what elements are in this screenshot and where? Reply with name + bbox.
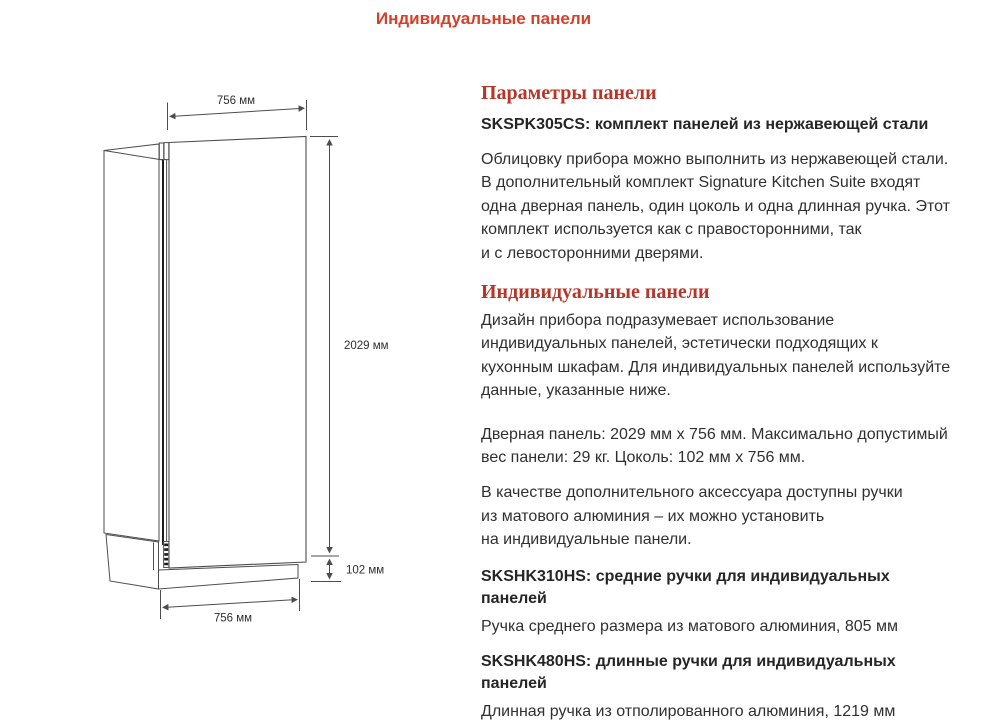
product-code-skspk305cs: SKSPK305CS: комплект панелей из нержавею… [481, 114, 959, 136]
paragraph-panel-params: Облицовку прибора можно выполнить из нер… [481, 148, 959, 265]
hinge-rail-drawing [164, 542, 169, 568]
dimension-plinth-height-label: 102 мм [346, 565, 384, 577]
dimension-height-label: 2029 мм [344, 340, 389, 352]
dimension-top-width: 756 мм [168, 95, 307, 130]
section-heading-panel-params: Параметры панели [481, 82, 959, 104]
content-column: Параметры панели SKSPK305CS: комплект па… [481, 82, 959, 724]
dimension-plinth-height: 102 мм [311, 560, 384, 582]
paragraph-handles-info: В качестве дополнительного аксессуара до… [481, 481, 959, 551]
dimension-bottom-width-label: 756 мм [214, 613, 252, 625]
product-code-skshk480hs: SKSHK480HS: длинные ручки для индивидуал… [481, 651, 959, 695]
dimension-top-width-label: 756 мм [217, 95, 255, 107]
section-heading-custom-panels: Индивидуальные панели [481, 281, 959, 303]
paragraph-custom-panels: Дизайн прибора подразумевает использован… [481, 309, 959, 403]
paragraph-panel-dimensions: Дверная панель: 2029 мм x 756 мм. Максим… [481, 423, 959, 470]
dimension-height: 2029 мм [310, 137, 389, 557]
panel-diagram: 756 мм 2029 мм 102 мм 756 мм [0, 0, 460, 699]
appliance-outline [104, 137, 306, 590]
product-code-skshk310hs: SKSHK310HS: средние ручки для индивидуал… [481, 566, 959, 610]
door-panel-drawing [159, 137, 306, 569]
paragraph-handle-long: Длинная ручка из отполированного алюмини… [481, 700, 959, 723]
paragraph-handle-mid: Ручка среднего размера из матового алюми… [481, 615, 959, 638]
side-panel-drawing [104, 144, 163, 541]
